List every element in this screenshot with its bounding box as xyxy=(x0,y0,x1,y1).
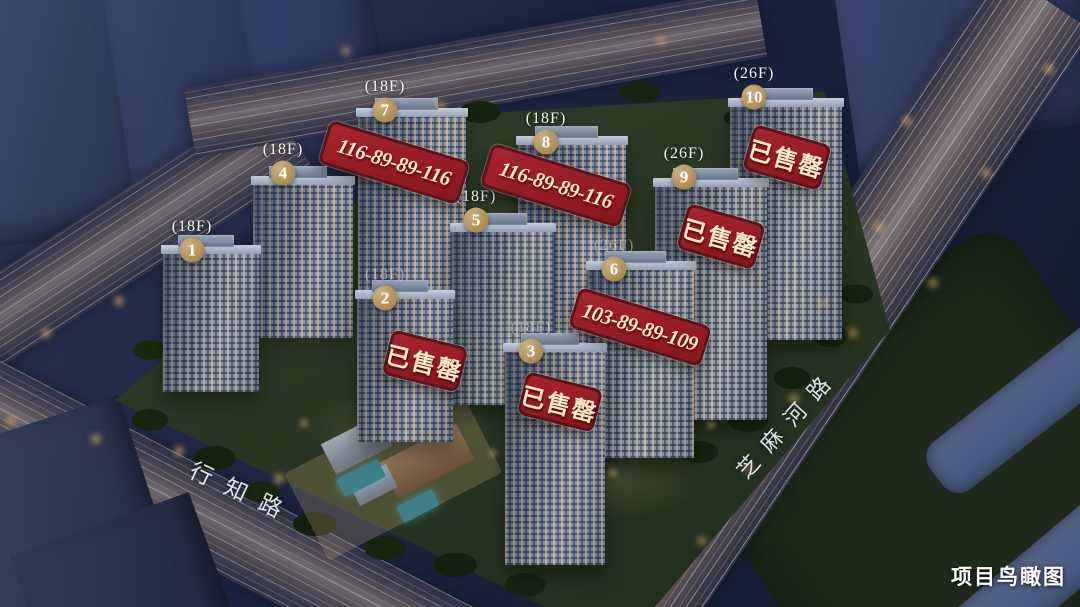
project-aerial-render: (18F) 1 (18F) 2 (18F) 3 (18F) 4 (18F) 5 … xyxy=(0,0,1080,607)
street-lamps xyxy=(0,0,2,2)
image-caption: 项目鸟瞰图 xyxy=(951,561,1066,591)
building-8-floors-label: (18F) xyxy=(526,110,567,128)
building-1-floors-label: (18F) xyxy=(172,218,213,236)
building-7-number-badge: 7 xyxy=(373,98,398,123)
building-2-number-badge: 2 xyxy=(373,286,398,311)
building-1-number-badge: 1 xyxy=(180,238,205,263)
building-4-floors-label: (18F) xyxy=(263,141,304,159)
building-4-number-badge: 4 xyxy=(271,161,296,186)
building-7-floors-label: (18F) xyxy=(365,78,406,96)
building-6-number-badge: 6 xyxy=(602,257,627,282)
building-3-floors-label: (18F) xyxy=(511,319,552,337)
building-10-floors-label: (26F) xyxy=(734,65,775,83)
building-5-number-badge: 5 xyxy=(464,208,489,233)
building-5-floors-label: (18F) xyxy=(456,188,497,206)
building-6-floors-label: (26F) xyxy=(594,237,635,255)
building-8-number-badge: 8 xyxy=(534,130,559,155)
building-9-number-badge: 9 xyxy=(672,165,697,190)
building-10-number-badge: 10 xyxy=(742,85,767,110)
building-4-tower xyxy=(253,183,353,338)
building-1-tower xyxy=(163,252,259,392)
building-9-floors-label: (26F) xyxy=(664,145,705,163)
building-2-floors-label: (18F) xyxy=(365,266,406,284)
building-3-number-badge: 3 xyxy=(519,339,544,364)
